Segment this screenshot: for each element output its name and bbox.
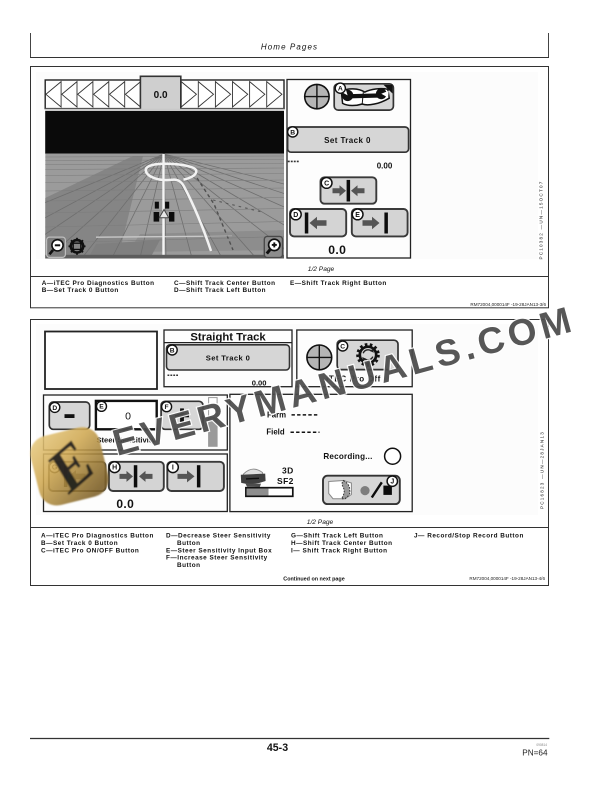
svg-text:090814: 090814 bbox=[536, 743, 547, 747]
svg-text:Straight Track: Straight Track bbox=[190, 331, 266, 343]
svg-text:E: E bbox=[355, 212, 360, 219]
svg-text:C—Shift Track Center Button: C—Shift Track Center Button bbox=[174, 280, 276, 287]
svg-text:C: C bbox=[324, 180, 329, 187]
svg-text:PN=64: PN=64 bbox=[522, 749, 548, 758]
svg-text:RM72004,000014F -19-28JAN13-4: RM72004,000014F -19-28JAN13-4/6 bbox=[469, 576, 545, 581]
svg-text:D: D bbox=[293, 212, 298, 219]
svg-text:A—iTEC Pro Diagnostics Button: A—iTEC Pro Diagnostics Button bbox=[41, 533, 154, 540]
svg-text:H—Shift Track Center Button: H—Shift Track Center Button bbox=[291, 540, 393, 547]
svg-text:PC10382 —UN—15OCT07: PC10382 —UN—15OCT07 bbox=[539, 181, 544, 260]
svg-text:A—iTEC Pro Diagnostics Button: A—iTEC Pro Diagnostics Button bbox=[42, 280, 155, 287]
svg-text:F—Increase Steer Sensitivity: F—Increase Steer Sensitivity bbox=[166, 555, 268, 562]
svg-text:1/2 Page: 1/2 Page bbox=[307, 519, 334, 526]
svg-text:D: D bbox=[52, 405, 57, 412]
svg-text:E—Shift Track Right Button: E—Shift Track Right Button bbox=[290, 280, 387, 287]
svg-text:E: E bbox=[99, 404, 104, 411]
svg-text:Set Track 0: Set Track 0 bbox=[324, 136, 371, 145]
svg-text:Button: Button bbox=[177, 540, 201, 547]
svg-text:C: C bbox=[340, 343, 345, 350]
svg-text:Home Pages: Home Pages bbox=[261, 42, 318, 51]
svg-text:0.0: 0.0 bbox=[154, 90, 168, 101]
svg-text:Recording...: Recording... bbox=[323, 452, 372, 461]
svg-text:H: H bbox=[112, 465, 117, 472]
svg-text:SF2: SF2 bbox=[277, 476, 294, 486]
svg-text:45-3: 45-3 bbox=[267, 742, 288, 754]
svg-text:B: B bbox=[290, 129, 295, 136]
svg-text:J: J bbox=[390, 479, 394, 486]
svg-text:G—Shift Track Left Button: G—Shift Track Left Button bbox=[291, 533, 383, 540]
svg-text:D—Decrease Steer Sensitivity: D—Decrease Steer Sensitivity bbox=[166, 533, 271, 540]
svg-text:I— Shift Track Right Button: I— Shift Track Right Button bbox=[291, 547, 388, 554]
svg-text:0.0: 0.0 bbox=[116, 497, 134, 511]
svg-text:J— Record/Stop Record Button: J— Record/Stop Record Button bbox=[414, 533, 524, 540]
svg-text:E—Steer Sensitivity Input Box: E—Steer Sensitivity Input Box bbox=[166, 547, 272, 554]
svg-text:1/2 Page: 1/2 Page bbox=[308, 266, 335, 273]
svg-text:Field: Field bbox=[266, 428, 284, 437]
svg-text:PC16823 —UN—28JAN13: PC16823 —UN—28JAN13 bbox=[540, 431, 545, 509]
svg-text:D—Shift Track Left Button: D—Shift Track Left Button bbox=[174, 287, 266, 294]
svg-text:I: I bbox=[172, 465, 174, 472]
svg-text:RM72004,000014F -19-28JAN13-3: RM72004,000014F -19-28JAN13-3/6 bbox=[470, 302, 546, 307]
svg-text:0.0: 0.0 bbox=[328, 243, 346, 257]
svg-text:A: A bbox=[338, 86, 343, 93]
svg-text:B—Set Track 0 Button: B—Set Track 0 Button bbox=[42, 287, 119, 294]
svg-text:Set Track 0: Set Track 0 bbox=[206, 354, 251, 363]
svg-text:Continued on next page: Continued on next page bbox=[283, 577, 344, 583]
svg-text:B: B bbox=[170, 347, 175, 354]
svg-text:Button: Button bbox=[177, 562, 201, 569]
svg-text:C—iTEC Pro ON/OFF Button: C—iTEC Pro ON/OFF Button bbox=[41, 547, 139, 554]
svg-text:B—Set Track 0 Button: B—Set Track 0 Button bbox=[41, 540, 118, 547]
svg-text:0.00: 0.00 bbox=[377, 162, 393, 171]
svg-text:3D: 3D bbox=[282, 466, 294, 476]
